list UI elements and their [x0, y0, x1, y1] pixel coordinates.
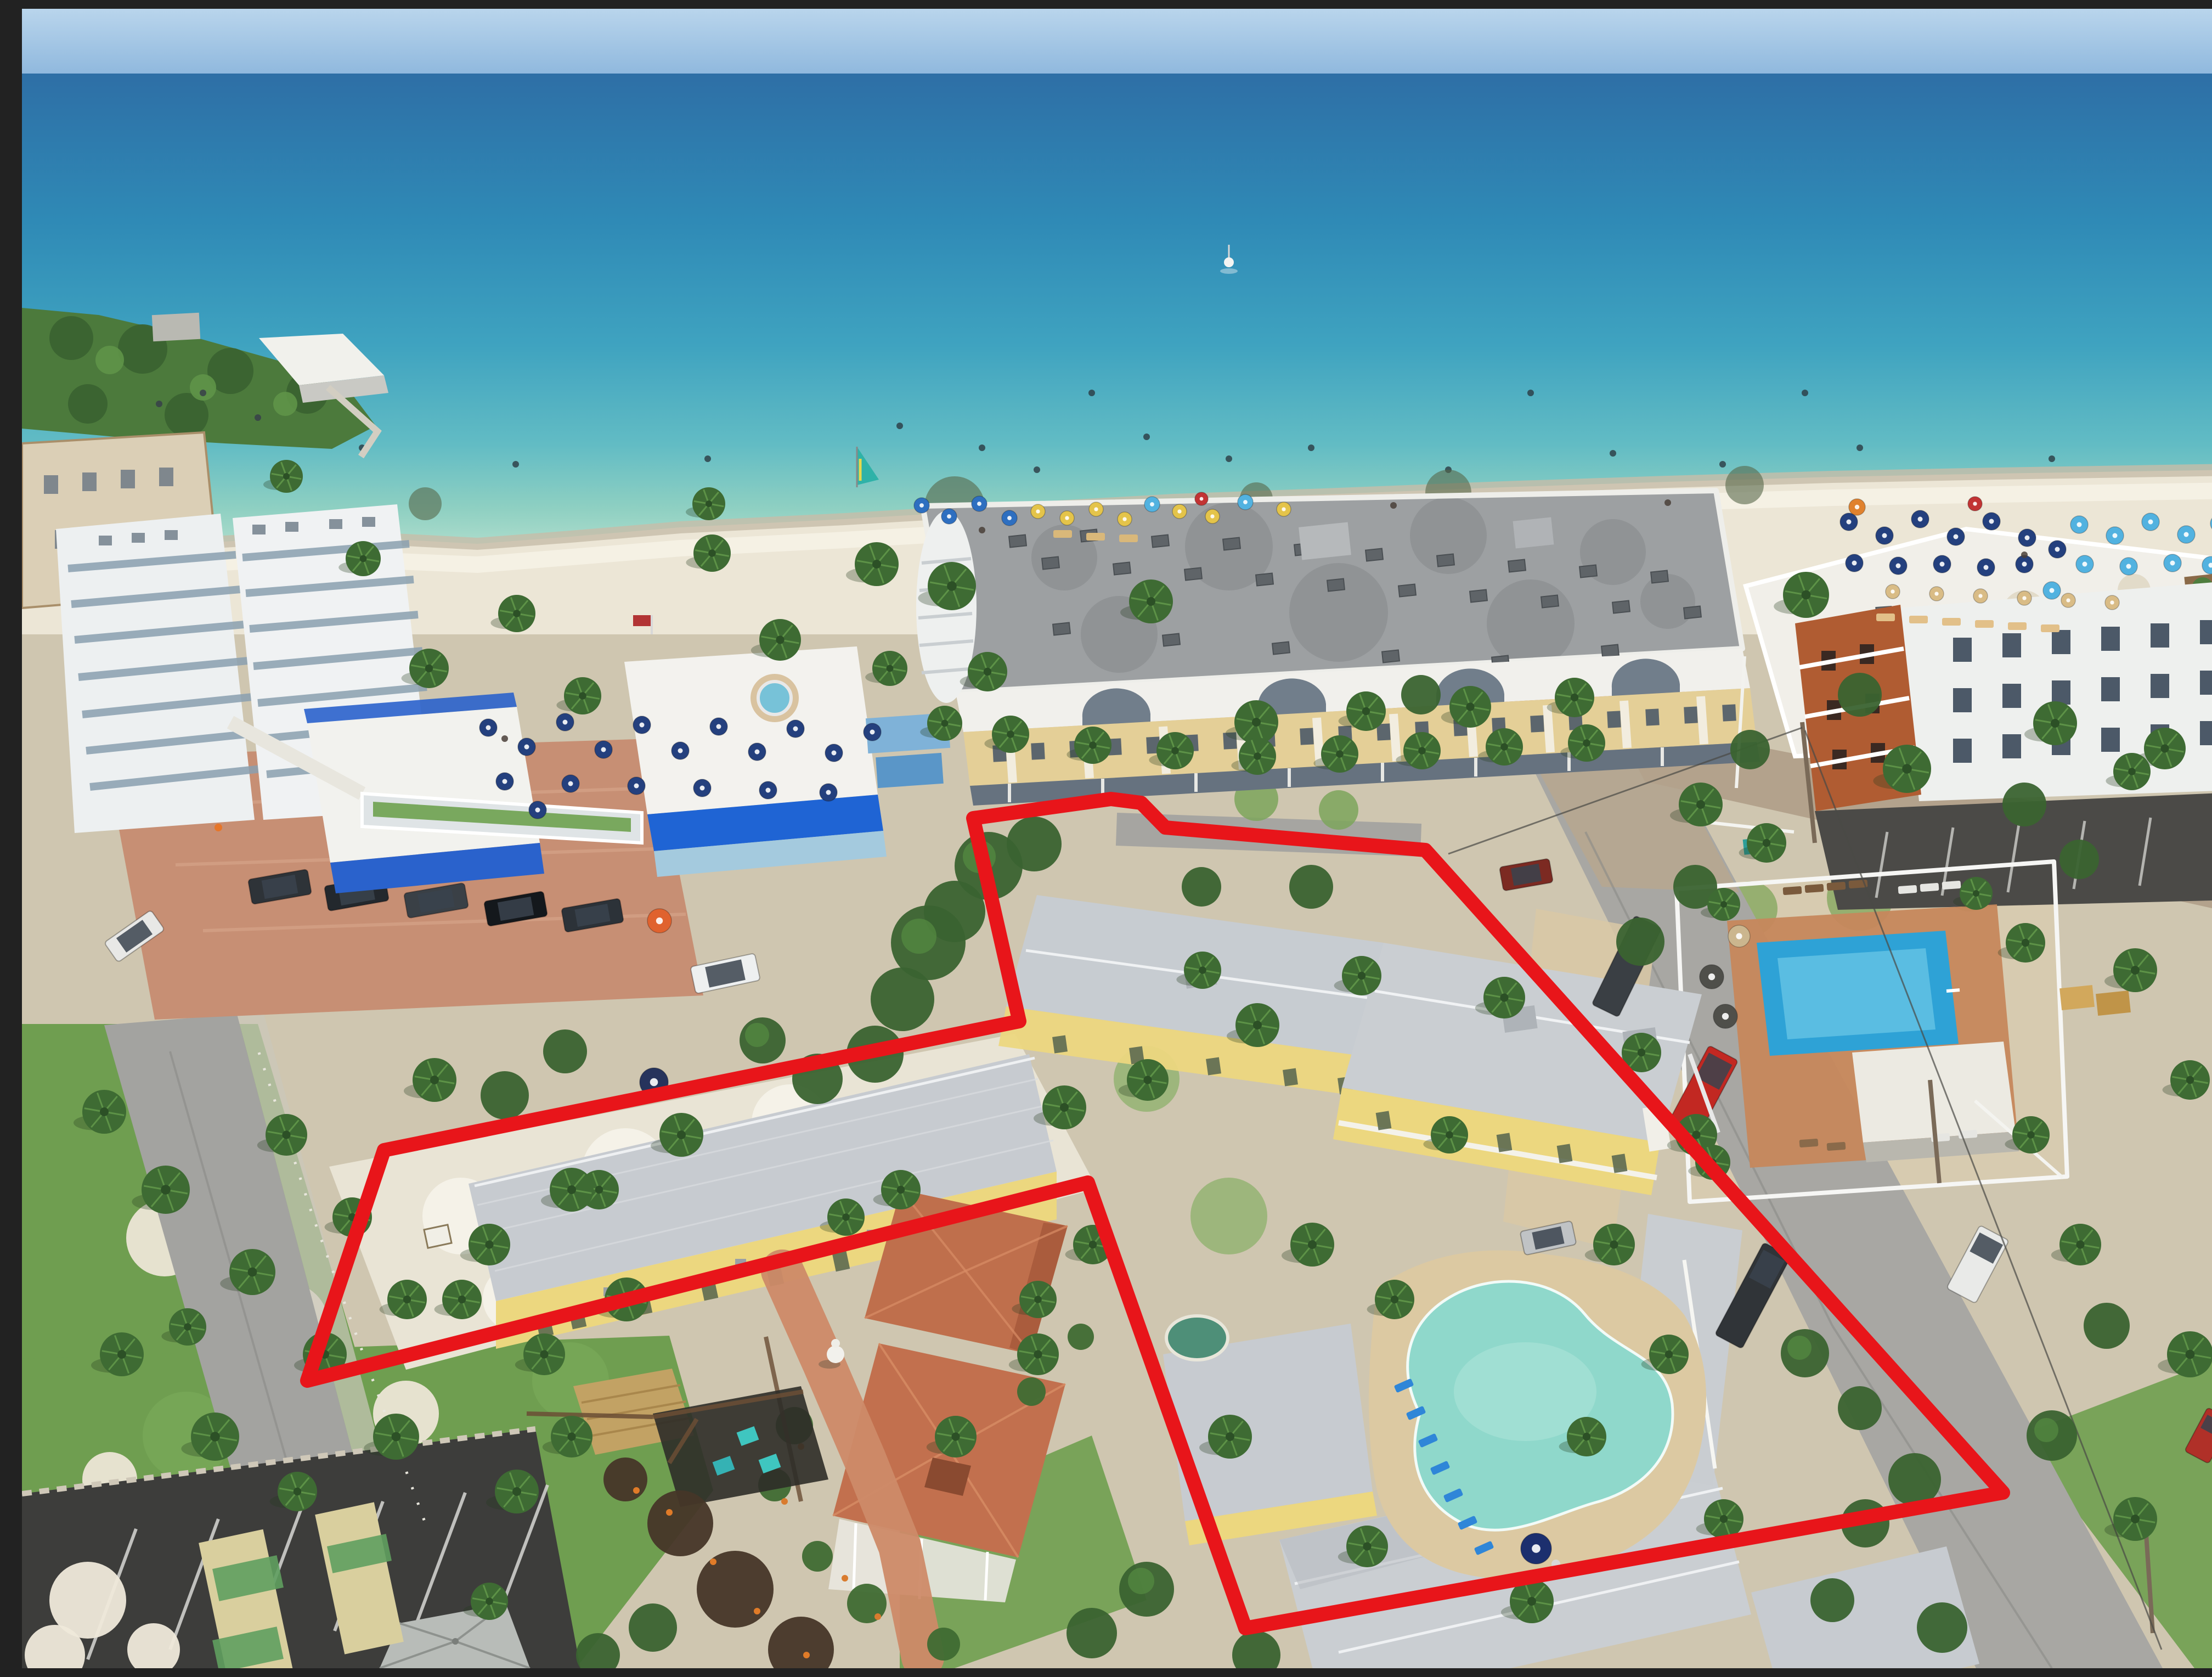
palm-crown [485, 1240, 493, 1248]
beach-umbrella [2049, 541, 2066, 558]
beach-umbrella [820, 784, 837, 801]
gazebo-finial [452, 1638, 459, 1645]
hotel-roof-hvac-item [1223, 537, 1240, 550]
palm-crown [210, 1432, 220, 1442]
beach-umbrella [518, 738, 535, 756]
swimmers-dot [1226, 455, 1232, 462]
tree-canopies-blob [629, 1603, 677, 1652]
mulch-beds-blob [647, 1490, 713, 1556]
umbrella-pole-top [1940, 562, 1945, 567]
umbrella-pole-top [2066, 598, 2070, 602]
umbrella-pole-top [1243, 500, 1248, 504]
beach-umbrella [556, 713, 574, 731]
beach-umbrella [1144, 497, 1160, 512]
garden-statue-head [831, 1339, 840, 1348]
palm-crown [248, 1268, 257, 1277]
umbrella-pole-top [1882, 533, 1887, 538]
palm-crown [2186, 1350, 2195, 1359]
umbrella-pole-top [2170, 561, 2175, 566]
bldg-C-windows-item [1557, 1144, 1573, 1163]
palm-crown [1089, 1241, 1097, 1248]
condo-windows-item [2101, 728, 2120, 752]
swimmers-dot [1857, 444, 1863, 451]
rooftop-ac-units-item [99, 536, 112, 545]
palm-crown [1500, 743, 1508, 751]
umbrella-pole-top [1122, 517, 1126, 521]
umbrella-pole-top [1852, 561, 1857, 566]
hotel-roof-hvac-item [1113, 562, 1131, 575]
beach-umbrella [2142, 513, 2159, 531]
palm-crown [1763, 839, 1770, 847]
umbrella-pole-top [1736, 933, 1742, 939]
cove-people-dot [200, 390, 206, 396]
condo-windows-item [2002, 684, 2021, 708]
palm-crown [2131, 1515, 2140, 1523]
umbrella-pole-top [634, 784, 639, 789]
palm-crown [1034, 1350, 1042, 1358]
mulch-beds-blob [697, 1551, 774, 1628]
palm-crown [1720, 1515, 1728, 1523]
beach-lounger [1053, 530, 1072, 538]
swimmers-dot [1308, 444, 1314, 451]
point-tree-clumps-blob [49, 316, 93, 360]
umbrella-pole-top [2050, 588, 2055, 593]
garden-shrubs-blob [927, 1628, 960, 1661]
condo-windows-item [2002, 734, 2021, 758]
umbrella-pole-top [1918, 517, 1923, 522]
umbrella-pole-top [1973, 502, 1977, 505]
palm-crown [403, 1296, 411, 1303]
bldg-B-windows-item [1052, 1035, 1068, 1053]
mulch-beds-blob [603, 1457, 647, 1501]
palm-crown [1583, 739, 1590, 747]
umbrella-pole-top [977, 502, 981, 506]
umbrella-pole-top [2083, 562, 2087, 567]
beach-umbrella [941, 509, 957, 524]
palm-crown [1973, 890, 1979, 897]
tree-canopies-blob [1007, 817, 1062, 871]
beach-umbrella [1929, 587, 1944, 601]
tree-canopies-blob [1810, 1578, 1854, 1622]
umbrella-pole-top [640, 723, 645, 728]
traffic-cone [215, 824, 222, 831]
tree-canopies-blob [2002, 783, 2046, 826]
tree-highlights-blob [1128, 1568, 1154, 1594]
cove-people-dot [156, 401, 162, 407]
beige-windows-item [121, 470, 135, 488]
beach-lounger [1876, 614, 1895, 621]
tree-canopies-blob [1917, 1602, 1967, 1653]
wood-pallet-1 [2059, 985, 2095, 1010]
hotel-pilasters-segment [1393, 714, 1397, 761]
palm-crown [2022, 939, 2029, 947]
umbrella-pole-top [1532, 1544, 1541, 1553]
palm-crown [567, 1185, 576, 1194]
condo-windows-item [2101, 677, 2120, 701]
rooftop-ac-units-item [329, 519, 342, 529]
umbrella-pole-top [1282, 507, 1285, 511]
umbrella-pole-top [832, 751, 837, 756]
umbrella-pole-top [2022, 562, 2027, 567]
hotel-roof-hvac-item [1042, 556, 1059, 569]
umbrella-pole-top [1984, 565, 1989, 570]
palm-crown [951, 1432, 960, 1440]
palm-crown [1902, 764, 1912, 774]
swimmers-dot [512, 461, 519, 468]
umbrella-pole-top [2022, 596, 2026, 600]
palm-crown [1199, 966, 1206, 974]
condo-windows-item [2200, 671, 2212, 695]
palm-crown [1446, 1131, 1453, 1139]
condo-windows-item [2151, 623, 2169, 648]
beach-umbrella [1983, 513, 2000, 530]
beach-umbrella [759, 781, 777, 799]
palm-crown [1336, 750, 1344, 758]
palm-crown [897, 1186, 905, 1194]
garden-flowers-dot [842, 1575, 848, 1582]
condo-windows-item [2002, 633, 2021, 657]
hotel-roof-hvac-item [1163, 633, 1180, 646]
palm-crown [1527, 1597, 1536, 1606]
palm-crown [2027, 1131, 2035, 1139]
umbrella-pole-top [656, 918, 663, 924]
beach-umbrella [647, 909, 672, 933]
point-tree-highlights-blob [273, 392, 297, 416]
swimmers-dot [1088, 390, 1095, 396]
hotel-roof-hvac-item [1398, 584, 1416, 596]
beach-umbrella [1700, 965, 1724, 989]
point-tree-clumps-blob [68, 384, 108, 424]
umbrella-pole-top [1934, 592, 1938, 595]
beach-umbrella [1195, 492, 1208, 505]
beach-umbrella [1521, 1533, 1551, 1564]
umbrella-pole-top [919, 503, 924, 508]
umbrella-pole-top [2113, 533, 2118, 538]
tree-canopies-blob [1616, 918, 1664, 966]
condo-windows-item [1953, 638, 1972, 662]
palm-crown [100, 1107, 109, 1116]
pool-ladder [1946, 990, 1960, 991]
palm-crown [1466, 702, 1474, 711]
bldg-C-windows-item [1376, 1111, 1392, 1130]
hotel-roof-hvac-item [1256, 573, 1273, 586]
beach-umbrella [1889, 557, 1907, 575]
lounger [1898, 885, 1917, 894]
beach-umbrella [479, 719, 497, 736]
beach-umbrella [825, 744, 843, 762]
umbrella-pole-top [1847, 520, 1852, 525]
beach-umbrella [595, 741, 612, 758]
palm-crown [392, 1432, 401, 1442]
condo-windows-item [2200, 721, 2212, 745]
tree-canopies-blob [1401, 675, 1441, 714]
palm-crown [1143, 1076, 1152, 1084]
beach-lounger [1909, 616, 1928, 623]
umbrella-pole-top [755, 750, 760, 755]
us-flag [633, 615, 651, 626]
palm-crown [458, 1296, 466, 1303]
palm-crown [513, 610, 521, 617]
hotel-windows-item [1722, 704, 1736, 721]
hotel-roof-hvac-item [1272, 641, 1290, 654]
garden-flowers-dot [874, 1613, 881, 1620]
lawn-texture-blob [1190, 1178, 1267, 1254]
palm-crown [1802, 590, 1811, 600]
beach-umbrella [529, 801, 546, 819]
condo-windows-item [2052, 630, 2070, 654]
tree-canopies-blob [1838, 1386, 1882, 1430]
umbrella-pole-top [650, 1078, 658, 1087]
beach-umbrella [628, 777, 645, 795]
umbrella-pole-top [1708, 973, 1715, 980]
orange-flowers-dot [803, 1652, 810, 1658]
hotel-windows-item [1684, 706, 1698, 723]
beach-umbrella [496, 773, 513, 790]
hotel-roof-hvac-item [1152, 534, 1169, 547]
palm-crown [1571, 694, 1578, 701]
palm-crown [1089, 741, 1097, 749]
hotel-roof-hvac-item [1579, 565, 1597, 577]
umbrella-pole-top [1954, 534, 1959, 539]
swimmers-dot [1527, 390, 1534, 396]
umbrella-pole-top [766, 788, 771, 793]
beach-lounger [1086, 533, 1105, 541]
palm-crown [512, 1487, 521, 1496]
beach-umbrella [2017, 591, 2032, 605]
beach-lounger [2041, 624, 2059, 632]
bldg-C-windows-item [1497, 1133, 1513, 1152]
beach-umbrella [864, 723, 881, 741]
seaweed-patches-blob [409, 487, 442, 520]
umbrella-pole-top [1200, 497, 1204, 501]
palm-crown [776, 635, 784, 644]
hotel-windows-item [1031, 742, 1045, 759]
palm-crown [1252, 718, 1261, 727]
lounger [1827, 1142, 1846, 1151]
umbrella-pole-top [1989, 519, 1994, 524]
palm-crown [708, 549, 716, 557]
beach-umbrella [1886, 584, 1900, 599]
hotel-pilasters-segment [1317, 718, 1320, 766]
hotel-roof-hvac-item [1053, 622, 1070, 635]
beach-umbrella [1973, 589, 1988, 603]
palm-crown [1638, 1049, 1645, 1056]
hotel-roof-hvac-item [1184, 567, 1202, 580]
umbrella-pole-top [1007, 516, 1012, 520]
beach-umbrella [633, 716, 651, 734]
condo-windows-item [2052, 680, 2070, 705]
hotel-pilasters-segment [1624, 701, 1627, 748]
beach-umbrella [2018, 529, 2036, 547]
beach-umbrella [2164, 554, 2181, 572]
hotel-roof-hvac-item [1009, 534, 1026, 547]
umbrella-pole-top [524, 745, 529, 750]
umbrella-pole-top [601, 747, 606, 752]
umbrella-pole-top [870, 730, 875, 735]
beach-umbrella [2105, 595, 2119, 610]
rooftop-ac-units-item [252, 525, 266, 534]
tree-canopies-blob [2084, 1303, 2130, 1349]
umbrella-pole-top [1210, 514, 1214, 518]
swimmers-dot [1719, 461, 1726, 468]
hotel-roof-hvac-item [1508, 559, 1526, 572]
hotel-roof-hvac-item [1327, 578, 1345, 591]
umbrella-pole-top [1855, 505, 1859, 509]
umbrella-pole-top [563, 720, 568, 725]
palm-crown [2131, 966, 2140, 975]
umbrella-pole-top [826, 790, 831, 795]
cove-people-dot [255, 414, 261, 421]
palm-crown [486, 1597, 493, 1605]
palm-crown [430, 1076, 439, 1084]
point-cottage [152, 313, 200, 341]
point-tree-highlights-blob [190, 374, 216, 401]
umbrella-pole-top [1978, 594, 1982, 598]
hotel-roof-hvac-item [1612, 600, 1630, 613]
hotel-roof-structure-1 [1299, 522, 1351, 560]
garden-statue-body [827, 1346, 844, 1363]
umbrella-pole-top [1036, 509, 1040, 513]
orange-flowers-dot [710, 1558, 716, 1565]
palm-crown [1007, 730, 1014, 738]
palm-crown [941, 720, 949, 727]
palm-crown [184, 1323, 191, 1331]
beach-people-dot [501, 735, 508, 742]
palm-crown [1254, 752, 1261, 760]
beach-lounger [1119, 534, 1138, 542]
tree-canopies-blob [543, 1029, 587, 1073]
beach-umbrella [1089, 502, 1103, 516]
umbrella-pole-top [2148, 520, 2153, 525]
palm-crown [282, 1130, 290, 1139]
beach-lounger [1975, 620, 1994, 628]
beach-umbrella [1876, 527, 1893, 544]
blue-cottage-2 [876, 753, 944, 788]
beach-umbrella [2043, 582, 2061, 599]
beach-umbrella [1031, 504, 1045, 519]
umbrella-pole-top [2126, 564, 2131, 569]
beach-umbrella [1238, 494, 1253, 510]
palm-crown [706, 500, 712, 507]
seaweed-patches-blob [1725, 466, 1764, 504]
layers-root [22, 9, 2212, 1668]
beach-umbrella [1977, 559, 1995, 576]
hotel-windows-item [1300, 728, 1314, 745]
palm-crown [1308, 1240, 1317, 1249]
palm-crown [540, 1350, 548, 1358]
beach-umbrella [693, 779, 711, 797]
rooftop-ac-units-item [362, 517, 375, 527]
beach-umbrella [2061, 593, 2075, 607]
umbrella-pole-top [486, 725, 491, 730]
lounger [1783, 886, 1802, 895]
umbrella-pole-top [1722, 1013, 1729, 1020]
umbrella-pole-top [1094, 507, 1098, 511]
palm-crown [677, 1130, 686, 1139]
beach-umbrella [748, 743, 766, 761]
condo-windows-item [2151, 674, 2169, 698]
hotel-pilasters-segment [1547, 705, 1550, 752]
beach-umbrella [1060, 511, 1074, 525]
umbrella-pole-top [568, 781, 573, 786]
umbrella-pole-top [947, 514, 951, 519]
palm-crown [2051, 719, 2059, 728]
swimmers-dot [2049, 455, 2055, 462]
hotel-roof-hvac-item [1651, 570, 1668, 583]
umbrella-pole-top [678, 749, 683, 753]
beach-umbrella [1947, 528, 1965, 545]
wood-pallet-2 [2096, 991, 2131, 1016]
beach-umbrella [1728, 925, 1750, 947]
palm-crown [2128, 768, 2136, 775]
umbrella-pole-top [716, 724, 721, 729]
tree-canopies-blob [2059, 840, 2099, 879]
palm-crown [1171, 747, 1179, 755]
tree-canopies-blob [1838, 673, 1882, 717]
palm-crown [1696, 800, 1705, 809]
beach-umbrella [1968, 497, 1982, 511]
palm-crown [161, 1185, 171, 1195]
umbrella-pole-top [1177, 509, 1181, 513]
hotel-roof-structure-2 [1513, 517, 1554, 548]
palm-crown [1500, 993, 1508, 1001]
beach-lounger [1942, 618, 1961, 626]
beach-umbrella [787, 720, 804, 738]
umbrella-pole-top [2025, 536, 2030, 541]
beach-umbrella [972, 496, 987, 511]
swimmers-dot [1610, 450, 1616, 457]
umbrella-pole-top [503, 779, 507, 784]
umbrella-pole-top [2055, 547, 2060, 552]
umbrella-pole-top [2110, 600, 2114, 604]
palm-crown [1226, 1432, 1234, 1441]
palm-crown [842, 1213, 850, 1221]
motel-roof [624, 646, 878, 814]
tree-canopies-blob [871, 967, 934, 1031]
hotel-roof-mottling-blob [1487, 579, 1575, 667]
beach-people-dot [1664, 499, 1671, 506]
beach-umbrella [1849, 499, 1865, 515]
lounger [1799, 1139, 1819, 1147]
tree-canopies-blob [1289, 865, 1333, 909]
palm-crown [1060, 1103, 1069, 1112]
tree-canopies-blob [481, 1071, 529, 1119]
beach-umbrella [1205, 509, 1220, 524]
pool-umbrella [1521, 1533, 1551, 1564]
hotel-roof-hvac-item [1684, 606, 1701, 618]
tree-highlights-blob [901, 919, 936, 954]
palm-crown [1253, 1021, 1262, 1029]
palm-crown [117, 1350, 126, 1359]
hotel-roof-mottling-blob [1640, 574, 1695, 629]
beach-umbrella [672, 742, 689, 759]
orange-flowers-dot [666, 1509, 673, 1516]
umbrella-pole-top [1896, 564, 1901, 569]
palm-crown [294, 1488, 301, 1495]
verge-grass-blob [1319, 790, 1358, 830]
umbrella-pole-top [2184, 532, 2189, 537]
rooftop-ac-units-item [285, 522, 298, 532]
garden-flowers-dot [781, 1498, 788, 1505]
hotel-windows-item [1607, 711, 1621, 728]
hotel-windows-item [1530, 715, 1544, 732]
palm-crown [1358, 972, 1365, 980]
orange-flowers-dot [754, 1608, 760, 1614]
palm-crown [1362, 707, 1370, 715]
palm-crown [595, 1186, 603, 1194]
swimmers-dot [1802, 390, 1808, 396]
hotel-roof-hvac-item [1365, 548, 1383, 561]
